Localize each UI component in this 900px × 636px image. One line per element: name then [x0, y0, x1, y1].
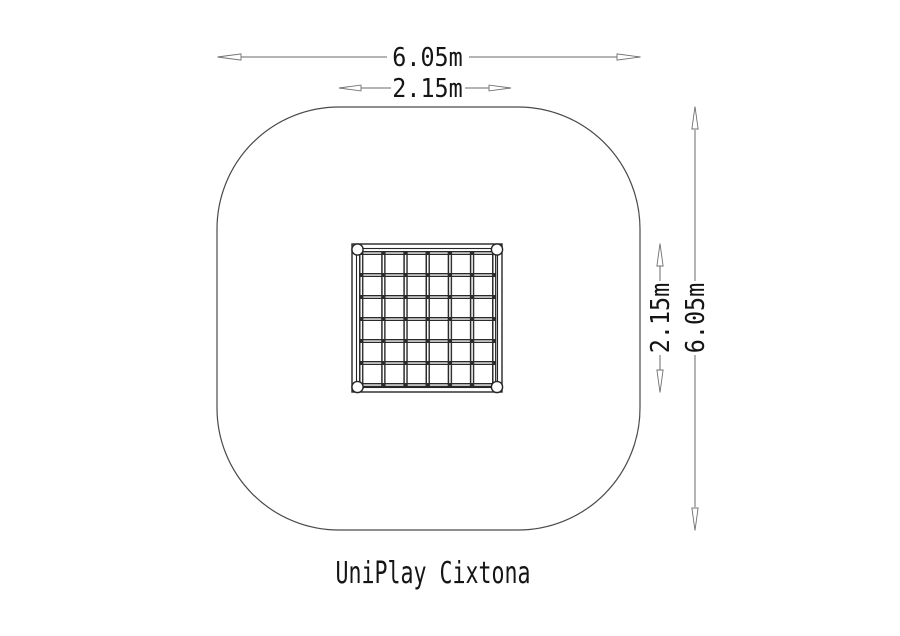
- corner-post-bottom-right: [491, 381, 502, 392]
- net-rope-grid: [359, 251, 496, 387]
- arrow-down-icon: [692, 508, 698, 531]
- arrow-right-icon: [617, 54, 641, 60]
- arrow-left-icon: [339, 85, 361, 91]
- corner-post-bottom-left: [352, 381, 363, 392]
- dimension-overall-width: 6.05m: [218, 42, 641, 72]
- climbing-net-equipment: [352, 244, 503, 393]
- corner-post-top-left: [352, 244, 363, 255]
- dimension-overall-height: 6.05m: [680, 107, 710, 531]
- technical-drawing-page: 6.05m 2.15m 2.15m 6.05m UniPlay Cixtona: [0, 0, 900, 636]
- equipment-height-label: 2.15m: [645, 283, 675, 353]
- overall-width-label: 6.05m: [392, 42, 462, 72]
- arrow-right-icon: [489, 85, 511, 91]
- overall-height-label: 6.05m: [680, 283, 710, 353]
- arrow-down-icon: [657, 370, 663, 393]
- dimension-equipment-height: 2.15m: [645, 244, 675, 393]
- arrow-up-icon: [692, 107, 698, 130]
- drawing-title: UniPlay Cixtona: [336, 557, 531, 591]
- arrow-left-icon: [218, 54, 242, 60]
- corner-post-top-right: [491, 244, 502, 255]
- equipment-width-label: 2.15m: [392, 73, 462, 103]
- plan-view-diagram: 6.05m 2.15m 2.15m 6.05m UniPlay Cixtona: [0, 0, 900, 636]
- dimension-equipment-width: 2.15m: [339, 73, 511, 103]
- arrow-up-icon: [657, 244, 663, 267]
